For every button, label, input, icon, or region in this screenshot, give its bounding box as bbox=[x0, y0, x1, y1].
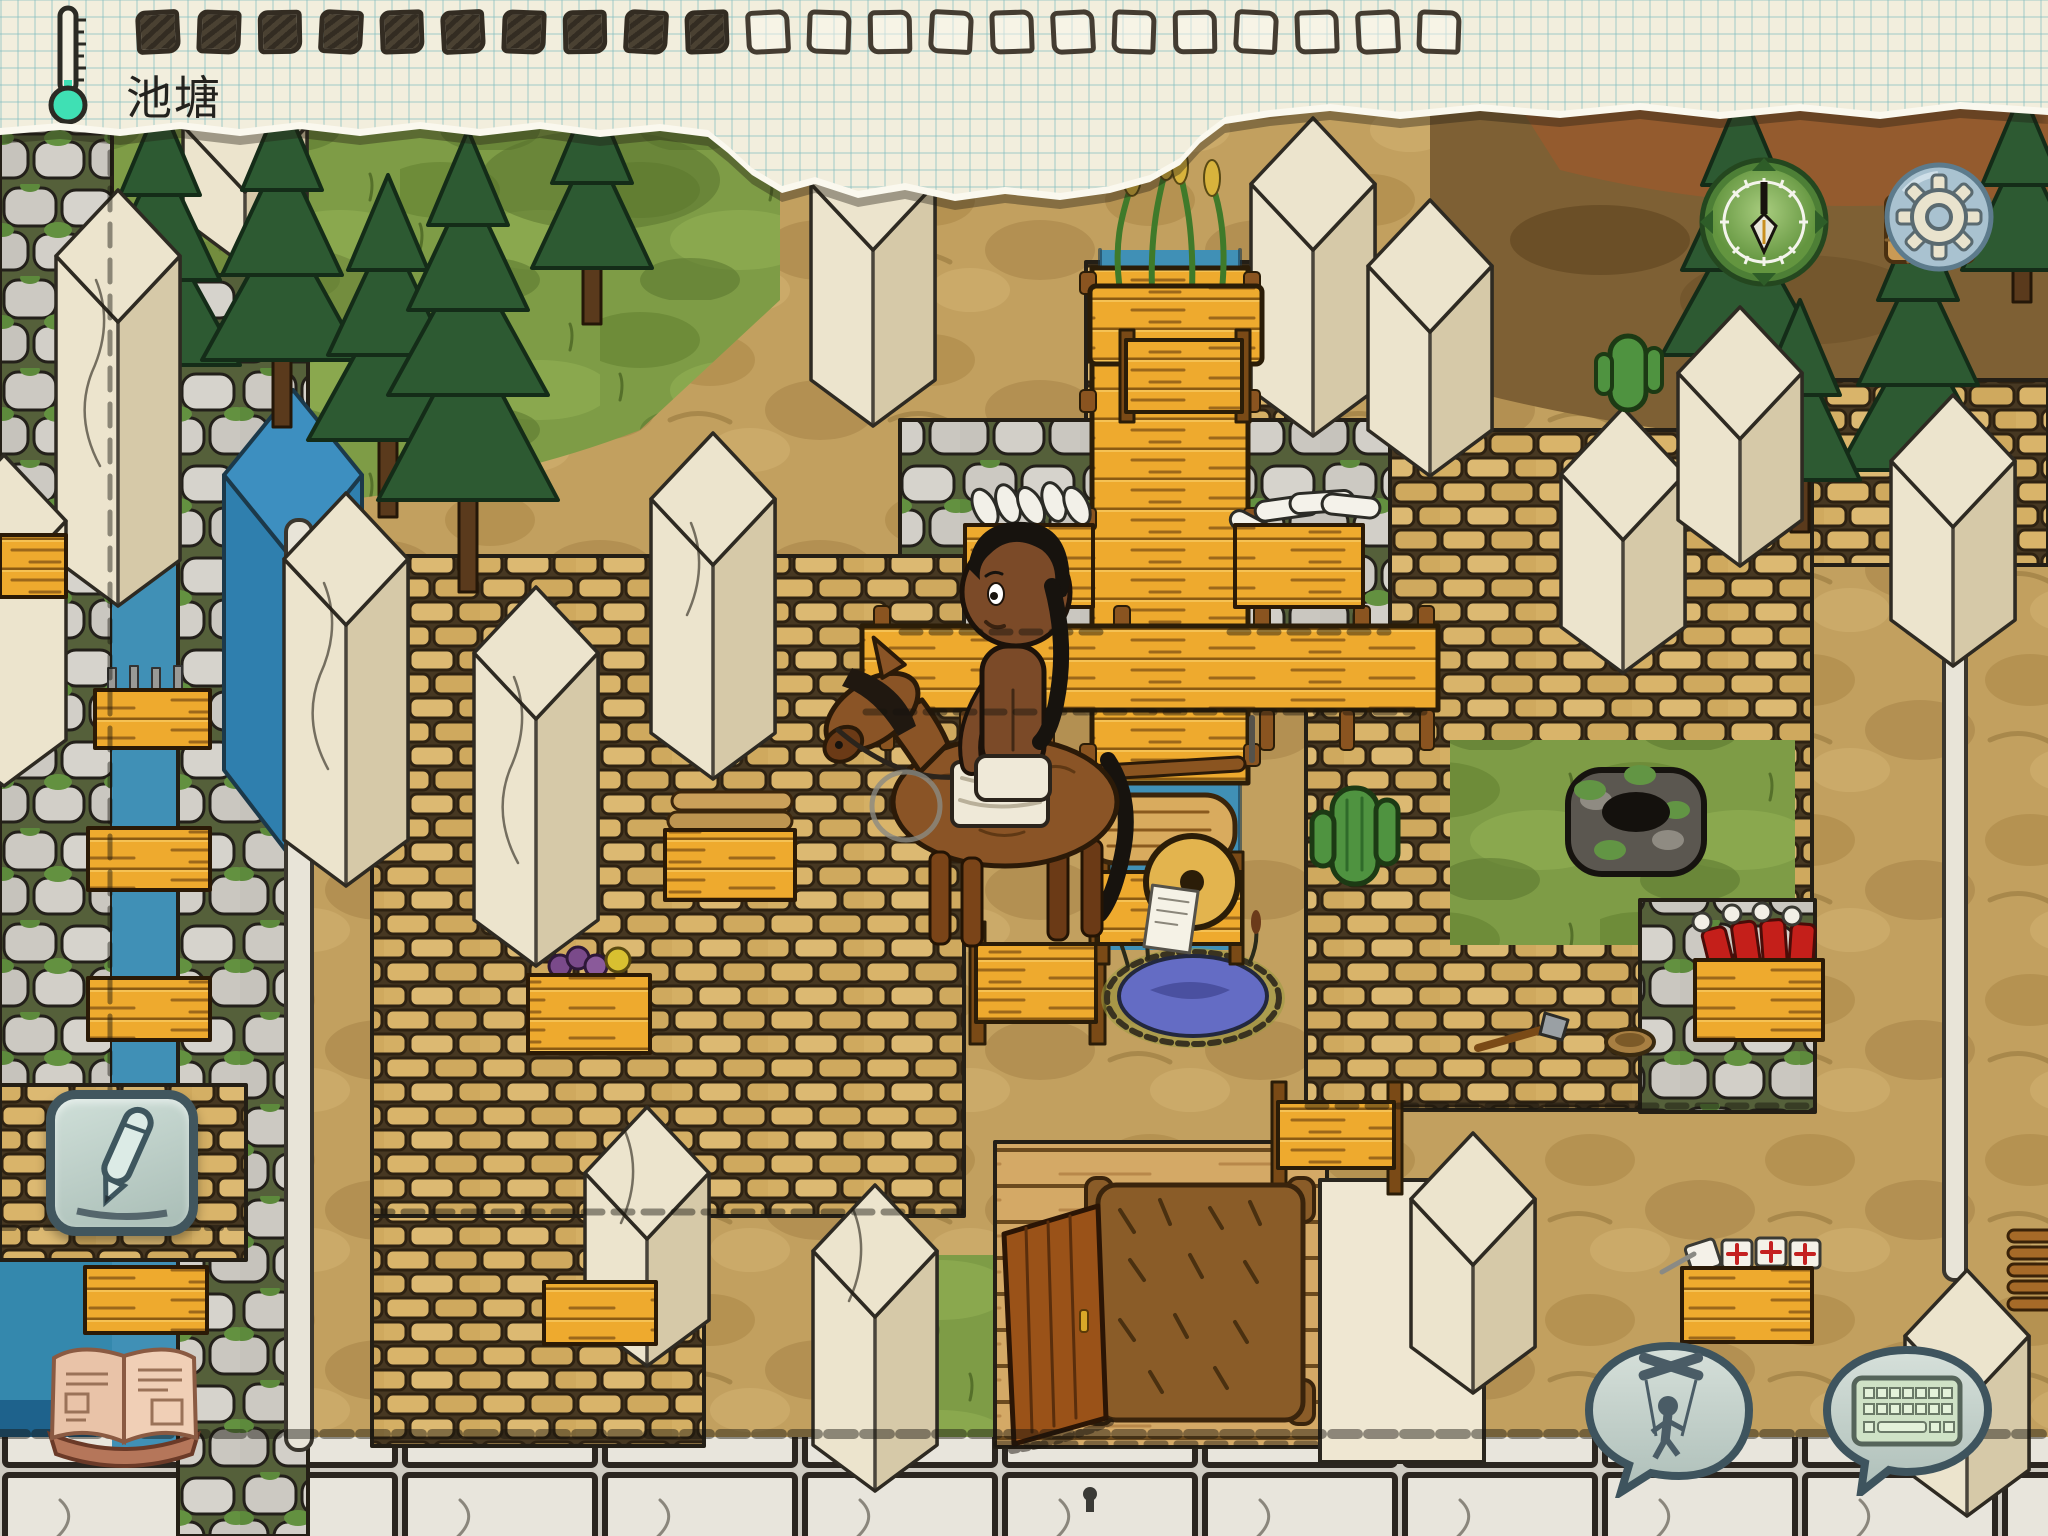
loincloth bbox=[976, 756, 1050, 800]
stone-pillar bbox=[284, 493, 408, 886]
stone-pillar bbox=[1251, 118, 1375, 436]
keyboard-chat-button[interactable] bbox=[1816, 1344, 1998, 1496]
small-gate[interactable] bbox=[1120, 330, 1250, 422]
food-pip-empty bbox=[928, 9, 974, 55]
food-pip-empty bbox=[1173, 10, 1218, 55]
temperature-gauge-button[interactable] bbox=[1698, 156, 1830, 288]
gear-icon bbox=[1884, 162, 1994, 272]
food-pip-filled bbox=[379, 9, 425, 55]
stone-pillar bbox=[56, 190, 180, 606]
pencil-icon bbox=[55, 1099, 189, 1227]
location-label: 池塘 bbox=[126, 62, 222, 128]
food-pip-empty bbox=[1416, 9, 1462, 55]
storage-crate[interactable] bbox=[544, 1282, 656, 1344]
bear-hide[interactable] bbox=[1086, 1178, 1314, 1424]
stone-pillar bbox=[651, 433, 775, 779]
food-pip-filled bbox=[135, 9, 181, 55]
open-book-icon bbox=[40, 1338, 208, 1474]
log-crate[interactable] bbox=[665, 792, 795, 900]
food-pip-empty bbox=[1111, 9, 1157, 55]
food-pip-filled bbox=[258, 10, 303, 55]
storage-crate[interactable] bbox=[85, 1267, 207, 1333]
write-button[interactable] bbox=[46, 1090, 198, 1236]
stone-well[interactable] bbox=[1568, 765, 1704, 874]
food-pip-empty bbox=[1050, 9, 1096, 55]
recipe-book-button[interactable] bbox=[40, 1338, 208, 1474]
food-pip-filled bbox=[196, 9, 242, 55]
gauge-needle-icon bbox=[1698, 156, 1830, 288]
wooden-door[interactable] bbox=[1004, 1206, 1110, 1450]
food-pips-row bbox=[136, 10, 1478, 54]
marionette-icon bbox=[1580, 1340, 1758, 1498]
food-pip-filled bbox=[440, 9, 486, 55]
keyboard-icon bbox=[1816, 1344, 1998, 1496]
medical-kit-crate[interactable] bbox=[1662, 1238, 1820, 1342]
storage-crate[interactable] bbox=[88, 828, 210, 890]
paper-sheet[interactable] bbox=[1144, 885, 1198, 953]
food-pip-filled bbox=[623, 9, 669, 55]
puppet-speech-button[interactable] bbox=[1580, 1340, 1758, 1498]
food-pip-empty bbox=[868, 10, 913, 55]
food-pip-empty bbox=[1355, 9, 1401, 55]
food-pip-filled bbox=[563, 10, 608, 55]
stone-pillar bbox=[474, 587, 598, 966]
bowl[interactable] bbox=[1606, 1029, 1654, 1055]
rope-coil[interactable] bbox=[2008, 1230, 2048, 1310]
humus-patch bbox=[1510, 205, 1690, 275]
white-post[interactable] bbox=[1944, 615, 1966, 1280]
food-pip-filled bbox=[684, 9, 730, 55]
food-pip-empty bbox=[745, 9, 791, 55]
food-pip-empty bbox=[1294, 9, 1340, 55]
food-pip-filled bbox=[318, 9, 364, 55]
food-pip-empty bbox=[989, 9, 1035, 55]
food-pip-filled bbox=[501, 9, 547, 55]
food-pip-empty bbox=[806, 9, 852, 55]
storage-crate[interactable] bbox=[0, 535, 66, 597]
game-screen: 池塘 bbox=[0, 0, 2048, 1536]
settings-button[interactable] bbox=[1884, 162, 1994, 272]
food-pip-empty bbox=[1233, 9, 1279, 55]
storage-crate[interactable] bbox=[88, 978, 210, 1040]
stone-pillar bbox=[813, 1185, 937, 1491]
thermometer-icon bbox=[36, 4, 100, 126]
